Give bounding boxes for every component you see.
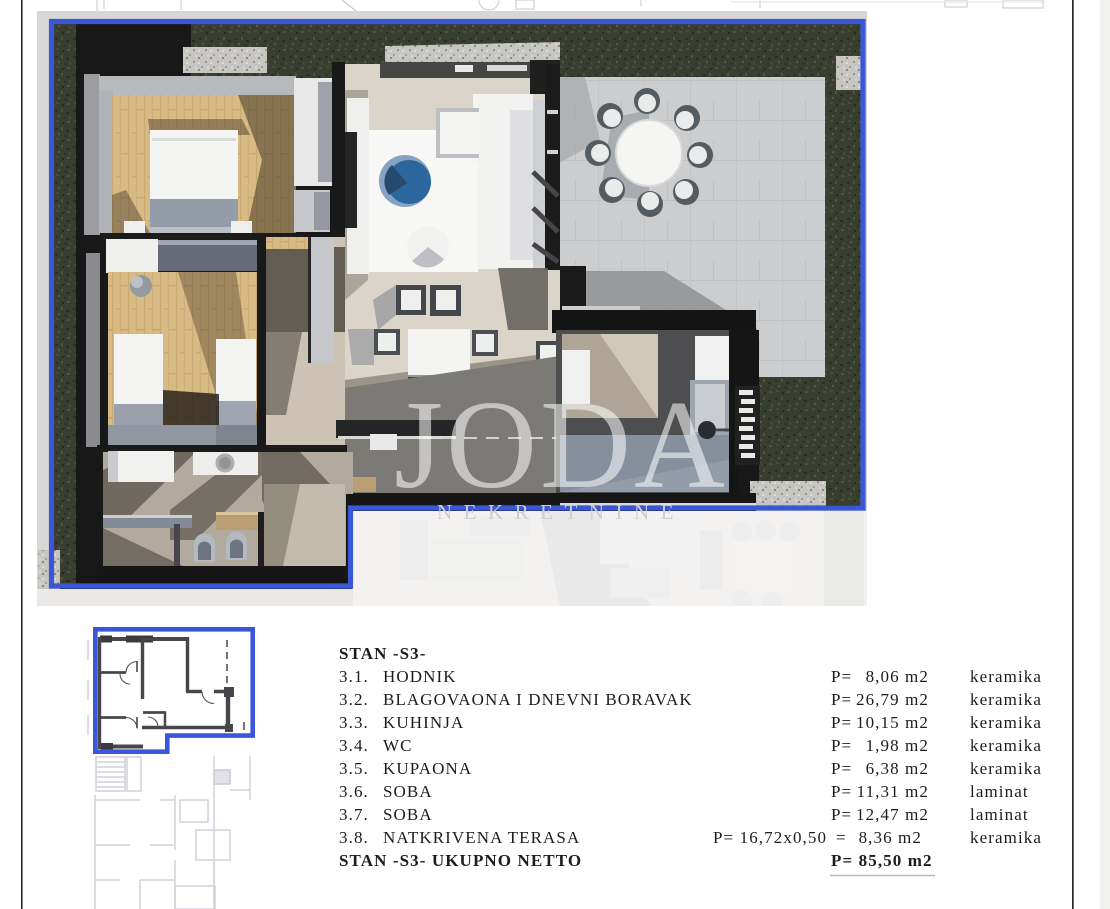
- svg-text:NATKRIVENA TERASA: NATKRIVENA TERASA: [383, 828, 580, 847]
- svg-text:8,36 m2: 8,36 m2: [859, 828, 922, 847]
- svg-text:JODA: JODA: [394, 376, 728, 515]
- svg-text:3.2.: 3.2.: [339, 690, 369, 709]
- svg-text:NEKRETNINE: NEKRETNINE: [437, 500, 685, 524]
- svg-text:3.6.: 3.6.: [339, 782, 369, 801]
- svg-text:STAN -S3-: STAN -S3-: [339, 644, 427, 663]
- svg-text:3.4.: 3.4.: [339, 736, 369, 755]
- svg-text:3.8.: 3.8.: [339, 828, 369, 847]
- svg-text:8,06 m2: 8,06 m2: [866, 667, 929, 686]
- svg-text:STAN -S3- UKUPNO NETTO: STAN -S3- UKUPNO NETTO: [339, 851, 582, 870]
- svg-text:1,98 m2: 1,98 m2: [866, 736, 929, 755]
- svg-text:keramika: keramika: [970, 690, 1042, 709]
- svg-text:laminat: laminat: [970, 805, 1029, 824]
- svg-text:laminat: laminat: [970, 782, 1029, 801]
- svg-text:11,31 m2: 11,31 m2: [857, 782, 929, 801]
- svg-text:keramika: keramika: [970, 736, 1042, 755]
- svg-text:keramika: keramika: [970, 828, 1042, 847]
- svg-text:10,15 m2: 10,15 m2: [856, 713, 929, 732]
- svg-text:=: =: [836, 828, 847, 847]
- svg-text:P=: P=: [831, 713, 852, 732]
- svg-text:WC: WC: [383, 736, 413, 755]
- svg-text:12,47 m2: 12,47 m2: [856, 805, 929, 824]
- svg-text:P=: P=: [831, 690, 852, 709]
- svg-text:keramika: keramika: [970, 667, 1042, 686]
- svg-text:P= 85,50 m2: P= 85,50 m2: [831, 851, 933, 870]
- svg-text:SOBA: SOBA: [383, 782, 433, 801]
- svg-text:KUHINJA: KUHINJA: [383, 713, 464, 732]
- svg-text:HODNIK: HODNIK: [383, 667, 457, 686]
- svg-text:P=: P=: [831, 736, 852, 755]
- svg-text:keramika: keramika: [970, 713, 1042, 732]
- svg-text:3.7.: 3.7.: [339, 805, 369, 824]
- svg-text:26,79 m2: 26,79 m2: [856, 690, 929, 709]
- svg-text:keramika: keramika: [970, 759, 1042, 778]
- svg-text:SOBA: SOBA: [383, 805, 433, 824]
- svg-text:3.1.: 3.1.: [339, 667, 369, 686]
- svg-text:3.3.: 3.3.: [339, 713, 369, 732]
- svg-text:6,38 m2: 6,38 m2: [866, 759, 929, 778]
- svg-text:P=: P=: [831, 805, 852, 824]
- svg-text:P=: P=: [831, 667, 852, 686]
- svg-text:KUPAONA: KUPAONA: [383, 759, 472, 778]
- svg-text:P=: P=: [831, 759, 852, 778]
- svg-text:P= 16,72x0,50: P= 16,72x0,50: [713, 828, 827, 847]
- svg-text:3.5.: 3.5.: [339, 759, 369, 778]
- svg-text:BLAGOVAONA I DNEVNI BORAVAK: BLAGOVAONA I DNEVNI BORAVAK: [383, 690, 693, 709]
- svg-text:P=: P=: [831, 782, 852, 801]
